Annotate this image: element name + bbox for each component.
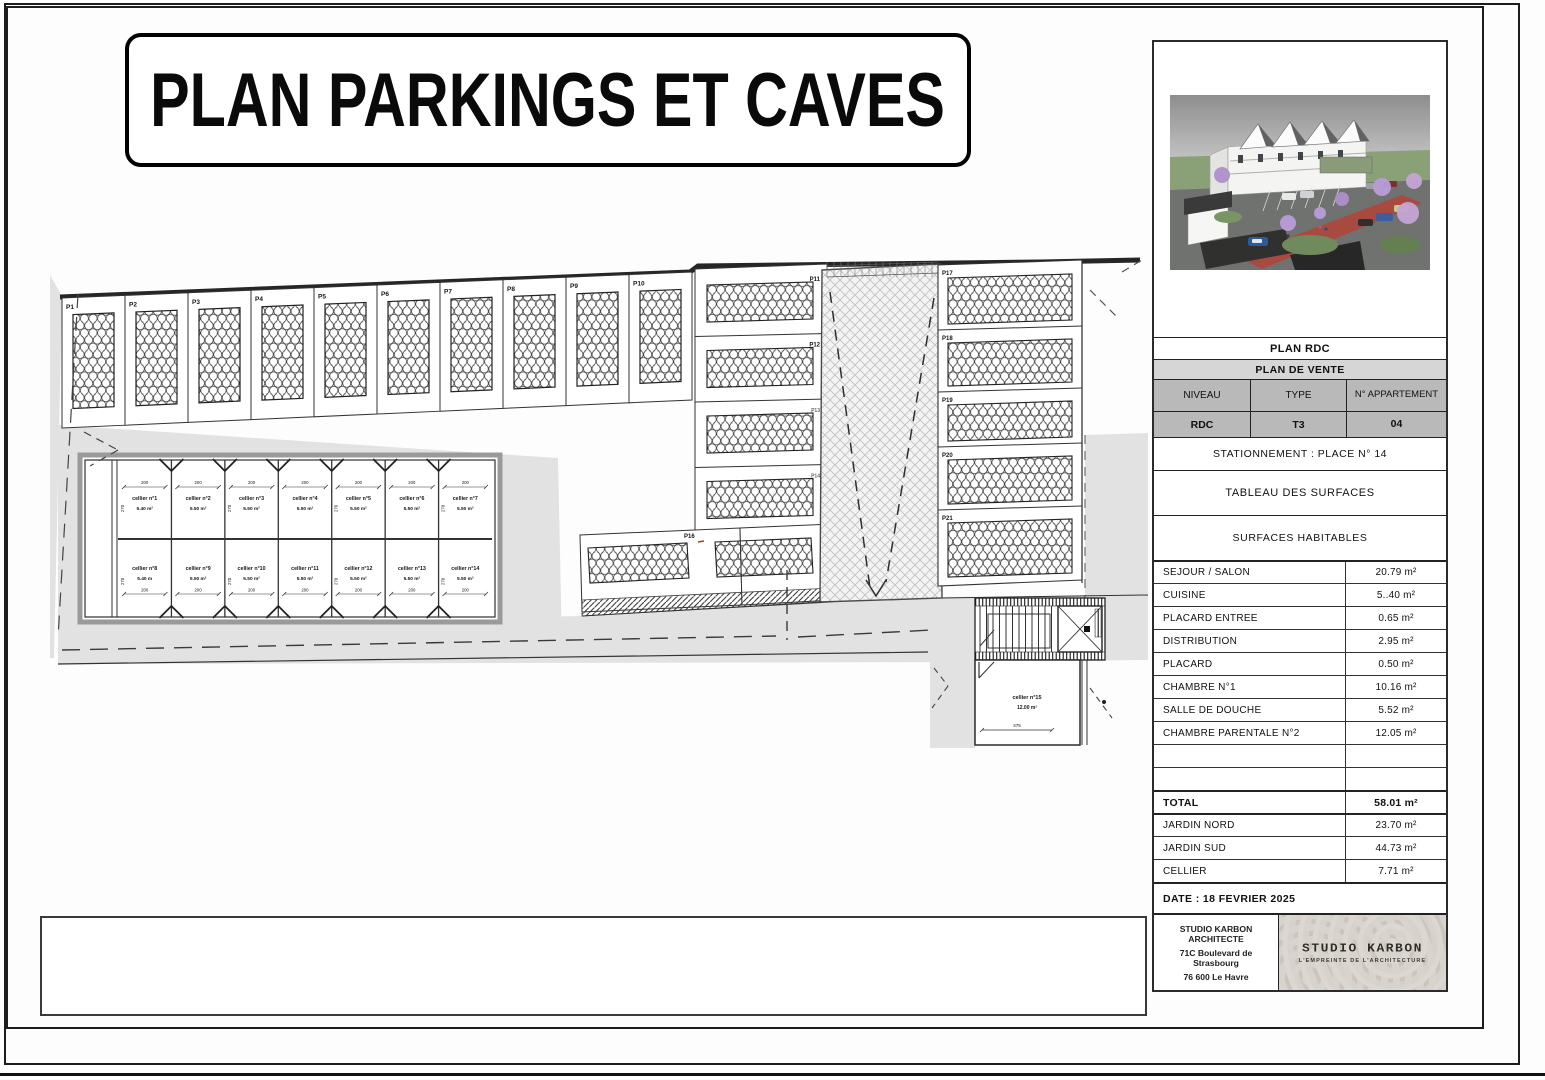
svg-text:cellier n°7: cellier n°7 <box>453 496 478 502</box>
page-bottom-rule <box>0 1073 1545 1076</box>
svg-text:200: 200 <box>408 480 416 485</box>
logo-tagline: L'EMPREINTE DE L'ARCHITECTURE <box>1299 958 1426 964</box>
svg-text:cellier n°11: cellier n°11 <box>291 566 319 572</box>
svg-text:P5: P5 <box>318 294 326 301</box>
svg-text:5.50 m²: 5.50 m² <box>404 576 421 582</box>
surface-row: CHAMBRE N°1 10.16 m² <box>1154 675 1446 698</box>
svg-text:12.00 m²: 12.00 m² <box>1017 705 1037 711</box>
svg-text:200: 200 <box>195 480 203 485</box>
header-niveau: NIVEAU <box>1154 380 1250 411</box>
svg-text:cellier n°4: cellier n°4 <box>292 496 317 502</box>
surface-row <box>1154 767 1446 790</box>
svg-text:5.50 m²: 5.50 m² <box>350 576 367 582</box>
surface-label <box>1154 768 1346 790</box>
svg-text:cellier n°1: cellier n°1 <box>132 496 157 502</box>
header-appartement: N° APPARTEMENT <box>1346 380 1446 411</box>
architect-street: 71C Boulevard de Strasbourg <box>1157 948 1275 968</box>
date-row: DATE : 18 FEVRIER 2025 <box>1154 882 1446 913</box>
svg-text:200: 200 <box>355 480 363 485</box>
surface-label: PLACARD ENTREE <box>1154 607 1346 629</box>
svg-text:cellier n°3: cellier n°3 <box>239 496 264 502</box>
architect-name: STUDIO KARBON ARCHITECTE <box>1157 924 1275 944</box>
value-niveau: RDC <box>1154 412 1250 437</box>
surface-value: 20.79 m² <box>1346 562 1446 583</box>
svg-text:P6: P6 <box>381 291 389 298</box>
disclaimer-box <box>40 916 1147 1016</box>
svg-text:200: 200 <box>141 480 149 485</box>
svg-text:cellier n°9: cellier n°9 <box>186 566 211 572</box>
floor-plan-drawing: P1P2P3P4P5P6P7P8P9P10P11P12P13P14P16P17P… <box>50 250 1155 762</box>
plan-rdc-row: PLAN RDC <box>1154 337 1446 359</box>
svg-text:cellier n°13: cellier n°13 <box>398 566 426 572</box>
annex-label: JARDIN NORD <box>1154 815 1346 836</box>
svg-text:P4: P4 <box>255 296 263 303</box>
svg-text:cellier n°2: cellier n°2 <box>186 496 211 502</box>
surface-value: 10.16 m² <box>1346 676 1446 698</box>
svg-text:cellier n°6: cellier n°6 <box>399 496 424 502</box>
surface-value: 12.05 m² <box>1346 722 1446 744</box>
svg-text:cellier n°5: cellier n°5 <box>346 496 371 502</box>
svg-text:P21: P21 <box>942 516 953 522</box>
svg-text:5.40 m: 5.40 m <box>137 576 152 582</box>
svg-text:cellier n°10: cellier n°10 <box>238 566 266 572</box>
svg-text:200: 200 <box>462 588 470 593</box>
title-block-footer: STUDIO KARBON ARCHITECTE 71C Boulevard d… <box>1154 913 1446 990</box>
annex-value: 7.71 m² <box>1346 860 1446 882</box>
svg-text:270: 270 <box>441 504 446 512</box>
surface-label: CHAMBRE PARENTALE N°2 <box>1154 722 1346 744</box>
surface-value <box>1346 768 1446 790</box>
surface-label: SALLE DE DOUCHE <box>1154 699 1346 721</box>
svg-text:P2: P2 <box>129 301 137 308</box>
annex-label: CELLIER <box>1154 860 1346 882</box>
svg-text:200: 200 <box>248 588 256 593</box>
surface-value: 2.95 m² <box>1346 630 1446 652</box>
surface-label: DISTRIBUTION <box>1154 630 1346 652</box>
svg-text:270: 270 <box>334 577 339 585</box>
value-type: T3 <box>1250 412 1346 437</box>
svg-text:270: 270 <box>441 577 446 585</box>
svg-text:P19: P19 <box>942 398 953 404</box>
svg-text:5.50 m²: 5.50 m² <box>457 576 474 582</box>
architect-info: STUDIO KARBON ARCHITECTE 71C Boulevard d… <box>1154 915 1279 990</box>
surface-value: 0.65 m² <box>1346 607 1446 629</box>
surfaces-table: SEJOUR / SALON 20.79 m² CUISINE 5..40 m²… <box>1154 560 1446 790</box>
svg-text:5.50 m²: 5.50 m² <box>404 506 421 512</box>
surface-label: SEJOUR / SALON <box>1154 562 1346 583</box>
svg-text:P11: P11 <box>810 277 821 283</box>
svg-text:P16: P16 <box>684 534 695 540</box>
svg-text:cellier n°15: cellier n°15 <box>1012 695 1041 701</box>
svg-text:P9: P9 <box>570 283 578 290</box>
surface-row: SALLE DE DOUCHE 5.52 m² <box>1154 698 1446 721</box>
logo-name: STUDIO KARBON <box>1302 942 1423 956</box>
surface-row: CUISINE 5..40 m² <box>1154 583 1446 606</box>
svg-text:5.50 m²: 5.50 m² <box>243 506 260 512</box>
architect-city: 76 600 Le Havre <box>1157 972 1275 982</box>
svg-text:5.50 m²: 5.50 m² <box>190 576 207 582</box>
sidebar-panel: PLAN RDC PLAN DE VENTE NIVEAU TYPE N° AP… <box>1152 40 1448 992</box>
svg-text:P20: P20 <box>942 453 953 459</box>
svg-text:200: 200 <box>355 588 363 593</box>
svg-text:200: 200 <box>301 588 309 593</box>
plan-de-vente-row: PLAN DE VENTE <box>1154 359 1446 379</box>
svg-text:200: 200 <box>462 480 470 485</box>
surface-row: SEJOUR / SALON 20.79 m² <box>1154 560 1446 583</box>
annex-value: 23.70 m² <box>1346 815 1446 836</box>
svg-text:200: 200 <box>248 480 256 485</box>
annex-row: CELLIER 7.71 m² <box>1154 859 1446 882</box>
surface-label <box>1154 745 1346 767</box>
svg-text:P14: P14 <box>811 474 820 480</box>
svg-text:cellier n°12: cellier n°12 <box>344 566 372 572</box>
svg-text:200: 200 <box>408 588 416 593</box>
surfaces-habitables-row: SURFACES HABITABLES <box>1154 515 1446 560</box>
svg-text:200: 200 <box>301 480 309 485</box>
total-value: 58.01 m² <box>1346 792 1446 813</box>
header-type: TYPE <box>1250 380 1346 411</box>
svg-text:270: 270 <box>227 577 232 585</box>
page-title: PLAN PARKINGS ET CAVES <box>151 57 946 144</box>
annex-row: JARDIN SUD 44.73 m² <box>1154 836 1446 859</box>
svg-text:5.50 m²: 5.50 m² <box>297 576 314 582</box>
svg-text:200: 200 <box>141 588 149 593</box>
svg-text:P7: P7 <box>444 288 452 295</box>
svg-text:P17: P17 <box>942 271 953 277</box>
svg-text:P10: P10 <box>633 281 645 288</box>
svg-text:5.50 m²: 5.50 m² <box>297 506 314 512</box>
surface-value <box>1346 745 1446 767</box>
sheet: PLAN PARKINGS ET CAVES P1P2P3P4P5P6P7P8P… <box>0 0 1545 1080</box>
svg-text:5.50 m²: 5.50 m² <box>350 506 367 512</box>
svg-text:375: 375 <box>1013 723 1021 728</box>
surface-value: 5.52 m² <box>1346 699 1446 721</box>
surface-label: CHAMBRE N°1 <box>1154 676 1346 698</box>
surface-value: 5..40 m² <box>1346 584 1446 606</box>
title-box: PLAN PARKINGS ET CAVES <box>125 33 971 167</box>
surface-row <box>1154 744 1446 767</box>
svg-text:270: 270 <box>334 504 339 512</box>
annex-table: JARDIN NORD 23.70 m² JARDIN SUD 44.73 m²… <box>1154 813 1446 882</box>
building-render-image <box>1170 95 1430 270</box>
total-row: TOTAL 58.01 m² <box>1154 790 1446 813</box>
surface-row: DISTRIBUTION 2.95 m² <box>1154 629 1446 652</box>
annex-label: JARDIN SUD <box>1154 837 1346 859</box>
svg-text:cellier n°8: cellier n°8 <box>132 566 157 572</box>
sale-header-row: NIVEAU TYPE N° APPARTEMENT <box>1154 379 1446 411</box>
svg-text:P8: P8 <box>507 286 515 293</box>
surface-label: CUISINE <box>1154 584 1346 606</box>
annex-value: 44.73 m² <box>1346 837 1446 859</box>
sale-values-row: RDC T3 04 <box>1154 411 1446 437</box>
surface-row: PLACARD ENTREE 0.65 m² <box>1154 606 1446 629</box>
svg-text:5.50 m²: 5.50 m² <box>190 506 207 512</box>
tableau-surfaces-row: TABLEAU DES SURFACES <box>1154 470 1446 515</box>
svg-text:P18: P18 <box>942 336 953 342</box>
svg-text:200: 200 <box>195 588 203 593</box>
surface-value: 0.50 m² <box>1346 653 1446 675</box>
svg-text:cellier n°14: cellier n°14 <box>451 566 479 572</box>
surface-label: PLACARD <box>1154 653 1346 675</box>
svg-text:270: 270 <box>120 577 125 585</box>
svg-text:5.50 m²: 5.50 m² <box>243 576 260 582</box>
sale-table: PLAN RDC PLAN DE VENTE NIVEAU TYPE N° AP… <box>1154 337 1446 990</box>
total-label: TOTAL <box>1154 792 1346 813</box>
value-appartement: 04 <box>1346 412 1446 437</box>
surface-row: CHAMBRE PARENTALE N°2 12.05 m² <box>1154 721 1446 744</box>
svg-text:5.40 m²: 5.40 m² <box>136 506 153 512</box>
svg-text:P12: P12 <box>809 343 820 349</box>
svg-text:P1: P1 <box>66 304 74 311</box>
svg-text:P3: P3 <box>192 299 200 306</box>
svg-text:5.50 m²: 5.50 m² <box>457 506 474 512</box>
studio-karbon-logo: STUDIO KARBON L'EMPREINTE DE L'ARCHITECT… <box>1279 915 1446 990</box>
surface-row: PLACARD 0.50 m² <box>1154 652 1446 675</box>
floor-plan: P1P2P3P4P5P6P7P8P9P10P11P12P13P14P16P17P… <box>50 250 1155 762</box>
annex-row: JARDIN NORD 23.70 m² <box>1154 813 1446 836</box>
svg-text:P13: P13 <box>811 408 820 414</box>
svg-text:270: 270 <box>120 504 125 512</box>
stationnement-row: STATIONNEMENT : PLACE N° 14 <box>1154 437 1446 470</box>
svg-text:270: 270 <box>227 504 232 512</box>
